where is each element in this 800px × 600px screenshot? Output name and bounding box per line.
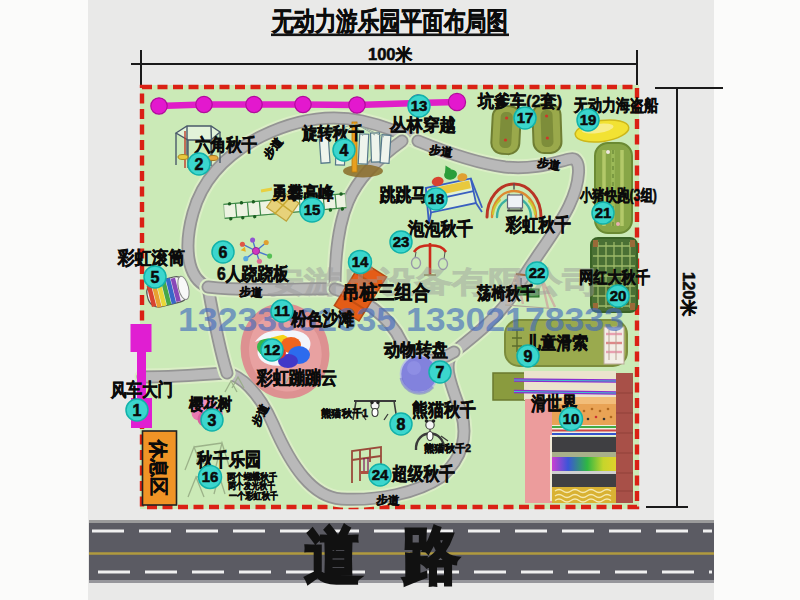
- svg-text:3: 3: [208, 412, 217, 429]
- svg-text:12: 12: [264, 341, 281, 358]
- svg-text:休息区: 休息区: [148, 439, 169, 496]
- svg-text:勇攀高峰: 勇攀高峰: [271, 183, 334, 203]
- svg-text:11: 11: [274, 302, 290, 319]
- svg-text:100米: 100米: [368, 45, 413, 63]
- svg-text:道: 道: [305, 521, 361, 590]
- svg-text:路: 路: [402, 521, 459, 590]
- svg-text:熊猫秋千: 熊猫秋千: [412, 399, 476, 420]
- svg-text:坑爹车(2套): 坑爹车(2套): [477, 91, 562, 111]
- svg-text:一个彩虹秋千: 一个彩虹秋千: [229, 490, 278, 501]
- svg-text:彩虹秋千: 彩虹秋千: [505, 214, 571, 235]
- svg-text:18: 18: [428, 190, 445, 207]
- svg-text:安游乐设备有限公司: 安游乐设备有限公司: [267, 265, 599, 298]
- svg-text:9: 9: [524, 348, 533, 365]
- svg-text:网红大秋千: 网红大秋千: [579, 268, 650, 286]
- svg-text:彩虹蹦蹦云: 彩虹蹦蹦云: [256, 367, 337, 388]
- svg-text:20: 20: [610, 287, 627, 304]
- svg-text:14: 14: [352, 253, 369, 270]
- svg-text:19: 19: [580, 111, 597, 128]
- svg-text:5: 5: [151, 269, 160, 286]
- svg-text:2: 2: [195, 156, 204, 173]
- svg-text:六角秋千: 六角秋千: [194, 135, 257, 155]
- svg-text:10: 10: [563, 410, 580, 427]
- svg-text:动物转盘: 动物转盘: [383, 339, 448, 360]
- svg-text:丛林穿越: 丛林穿越: [389, 115, 456, 135]
- svg-text:旋转秋千: 旋转秋千: [301, 124, 364, 143]
- svg-text:21: 21: [595, 204, 612, 221]
- svg-text:7: 7: [436, 364, 445, 381]
- svg-text:彩虹滚筒: 彩虹滚筒: [117, 247, 185, 268]
- svg-text:15: 15: [304, 201, 321, 218]
- svg-text:熊猫秋千1: 熊猫秋千1: [321, 407, 368, 419]
- svg-text:无动力游乐园平面布局图: 无动力游乐园平面布局图: [271, 6, 508, 36]
- svg-text:超级秋千: 超级秋千: [391, 463, 455, 484]
- svg-text:6人跷跷板: 6人跷跷板: [217, 263, 290, 284]
- svg-text:8: 8: [397, 416, 406, 433]
- svg-text:熊猫秋千2: 熊猫秋千2: [424, 442, 471, 454]
- svg-text:4: 4: [340, 142, 349, 159]
- svg-text:粉色沙滩: 粉色沙滩: [290, 309, 354, 329]
- svg-text:吊桩三组合: 吊桩三组合: [342, 281, 430, 303]
- svg-text:6: 6: [219, 244, 228, 261]
- svg-text:1: 1: [133, 402, 142, 419]
- svg-text:风车大门: 风车大门: [110, 379, 173, 400]
- svg-text:17: 17: [517, 109, 534, 126]
- svg-text:23: 23: [393, 233, 410, 250]
- svg-text:跳跳马: 跳跳马: [379, 184, 427, 205]
- svg-text:泡泡秋千: 泡泡秋千: [407, 218, 473, 239]
- svg-text:24: 24: [372, 466, 389, 483]
- svg-text:13: 13: [411, 97, 428, 114]
- svg-text:小猪快跑(3组): 小猪快跑(3组): [579, 186, 657, 204]
- svg-text:22: 22: [529, 264, 546, 281]
- svg-text:16: 16: [202, 468, 219, 485]
- svg-text:120米: 120米: [680, 272, 698, 317]
- svg-text:荡椅秋千: 荡椅秋千: [476, 284, 535, 303]
- svg-text:步道: 步道: [376, 493, 400, 507]
